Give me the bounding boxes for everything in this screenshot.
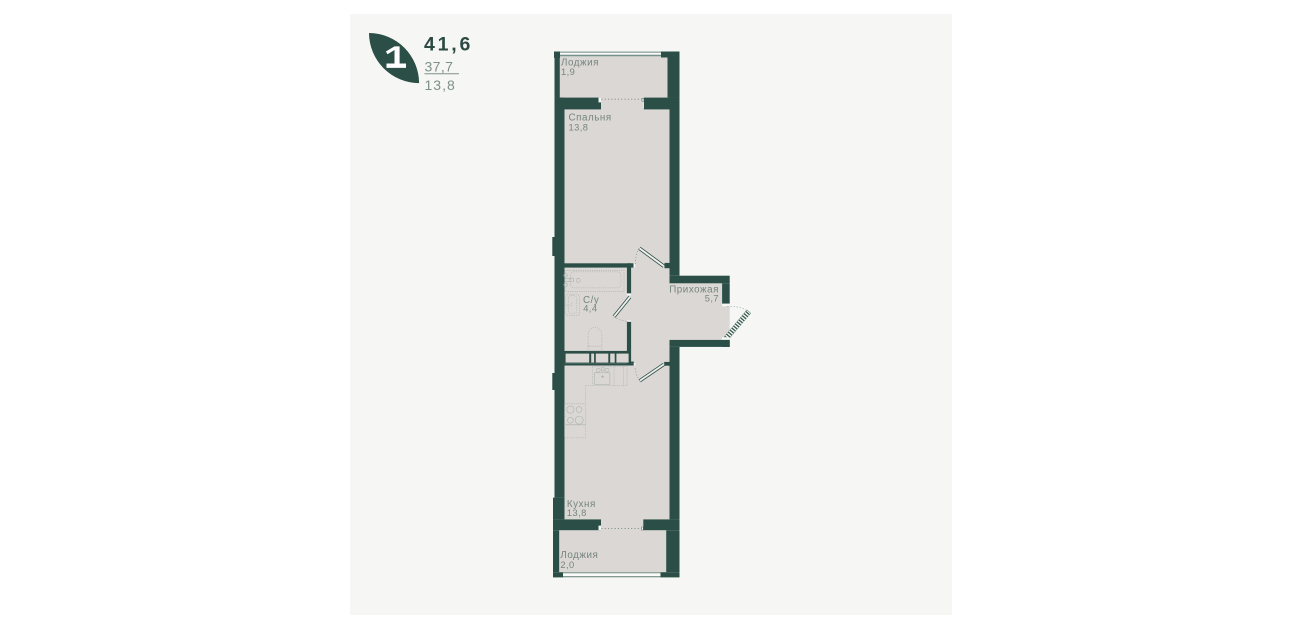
svg-text:37,7: 37,7 bbox=[425, 59, 454, 75]
svg-text:4,4: 4,4 bbox=[583, 304, 597, 314]
svg-text:13,8: 13,8 bbox=[569, 122, 589, 132]
svg-text:13,8: 13,8 bbox=[567, 508, 587, 518]
svg-text:13,8: 13,8 bbox=[425, 77, 456, 93]
svg-text:1,9: 1,9 bbox=[561, 67, 575, 77]
svg-text:41,6: 41,6 bbox=[424, 34, 473, 56]
svg-text:2,0: 2,0 bbox=[560, 560, 574, 570]
svg-text:5,7: 5,7 bbox=[705, 293, 719, 303]
